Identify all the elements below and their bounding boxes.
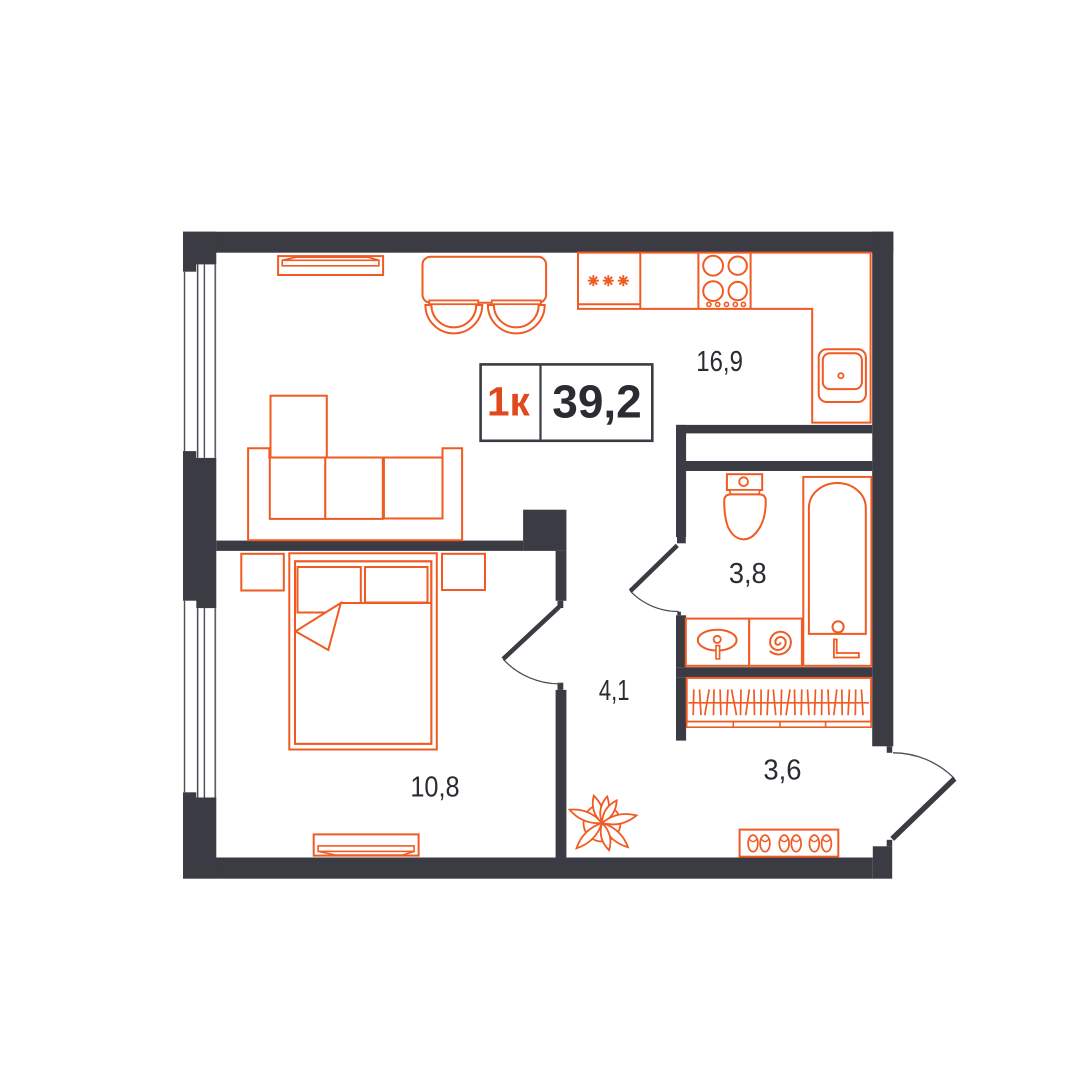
svg-text:3,6: 3,6 [763,754,801,786]
svg-text:4,1: 4,1 [599,675,630,707]
svg-text:1к: 1к [487,379,531,425]
svg-text:3,8: 3,8 [729,558,767,590]
svg-text:10,8: 10,8 [410,772,459,804]
svg-text:39,2: 39,2 [552,376,642,428]
svg-text:16,9: 16,9 [696,346,743,378]
